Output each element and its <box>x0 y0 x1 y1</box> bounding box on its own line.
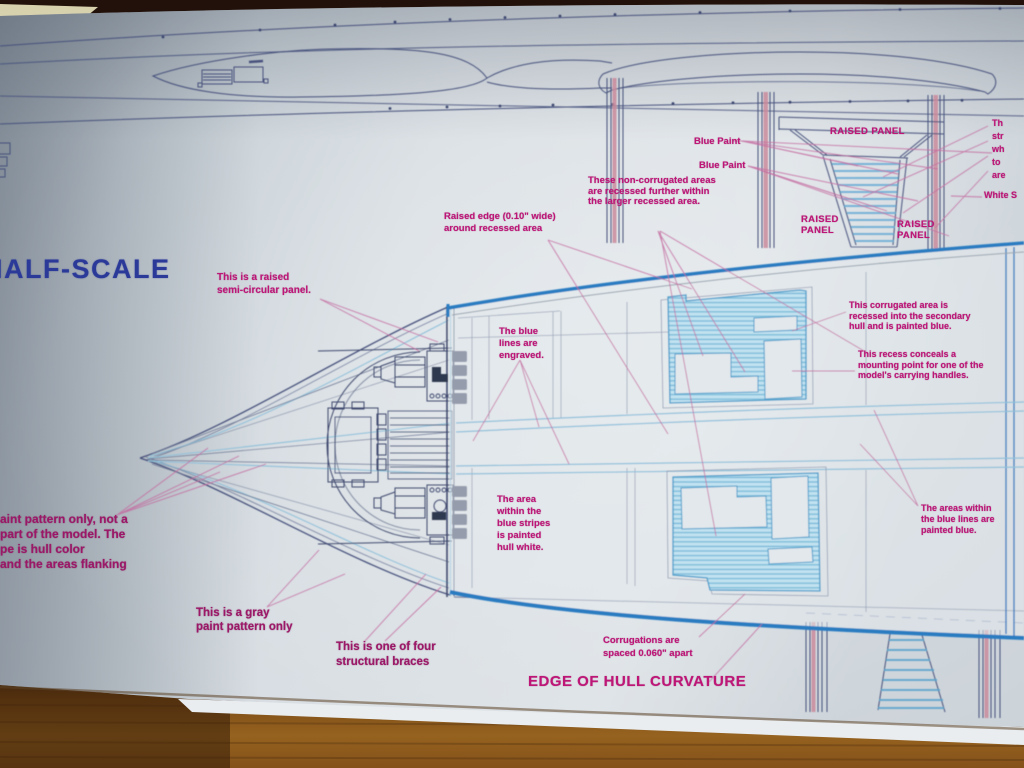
half-scale-title: HALF-SCALE <box>0 254 170 285</box>
annotation-blue-paint-1: Blue Paint <box>694 136 740 147</box>
annotation-clipped-left-edge: aint pattern only, not a part of the mod… <box>0 512 128 572</box>
annotation-gray-pattern: This is a gray paint pattern only <box>196 607 292 634</box>
annotation-blue-paint-2: Blue Paint <box>699 160 745 171</box>
annotation-area-within-stripes: The area within the blue stripes is pain… <box>497 494 550 554</box>
label-raised-panel-top: RAISED PANEL <box>830 126 905 137</box>
label-raised-panel-left: RAISED PANEL <box>801 214 839 236</box>
annotation-white-s: White S <box>984 190 1024 200</box>
annotation-structural-braces: This is one of four structural braces <box>336 640 436 670</box>
annotation-blue-lines-engraved: The blue lines are engraved. <box>499 326 544 362</box>
annotation-edge-of-hull: EDGE OF HULL CURVATURE <box>528 673 746 690</box>
annotation-non-corrugated: These non-corrugated areas are recessed … <box>588 176 716 208</box>
annotation-semi-circular-panel: This is a raised semi-circular panel. <box>217 272 311 297</box>
annotation-clipped-right-edge: Th str wh to are <box>992 117 1006 182</box>
annotation-recess-conceals: This recess conceals a mounting point fo… <box>858 349 983 381</box>
blueprint-drawing <box>0 0 1024 768</box>
label-raised-panel-right: RAISED PANEL <box>897 219 935 241</box>
annotation-areas-within-blue: The areas within the blue lines are pain… <box>921 503 995 536</box>
corrugated-panel-lower <box>667 467 828 596</box>
corrugated-panel-upper <box>661 287 813 408</box>
annotation-corrugated-recessed: This corrugated area is recessed into th… <box>849 300 971 332</box>
annotation-corrugations-spaced: Corrugations are spaced 0.060" apart <box>603 635 693 660</box>
photographed-blueprint-sheet: HALF-SCALE Raised edge (0.10" wide) arou… <box>0 0 1024 768</box>
annotation-raised-edge: Raised edge (0.10" wide) around recessed… <box>444 211 556 234</box>
